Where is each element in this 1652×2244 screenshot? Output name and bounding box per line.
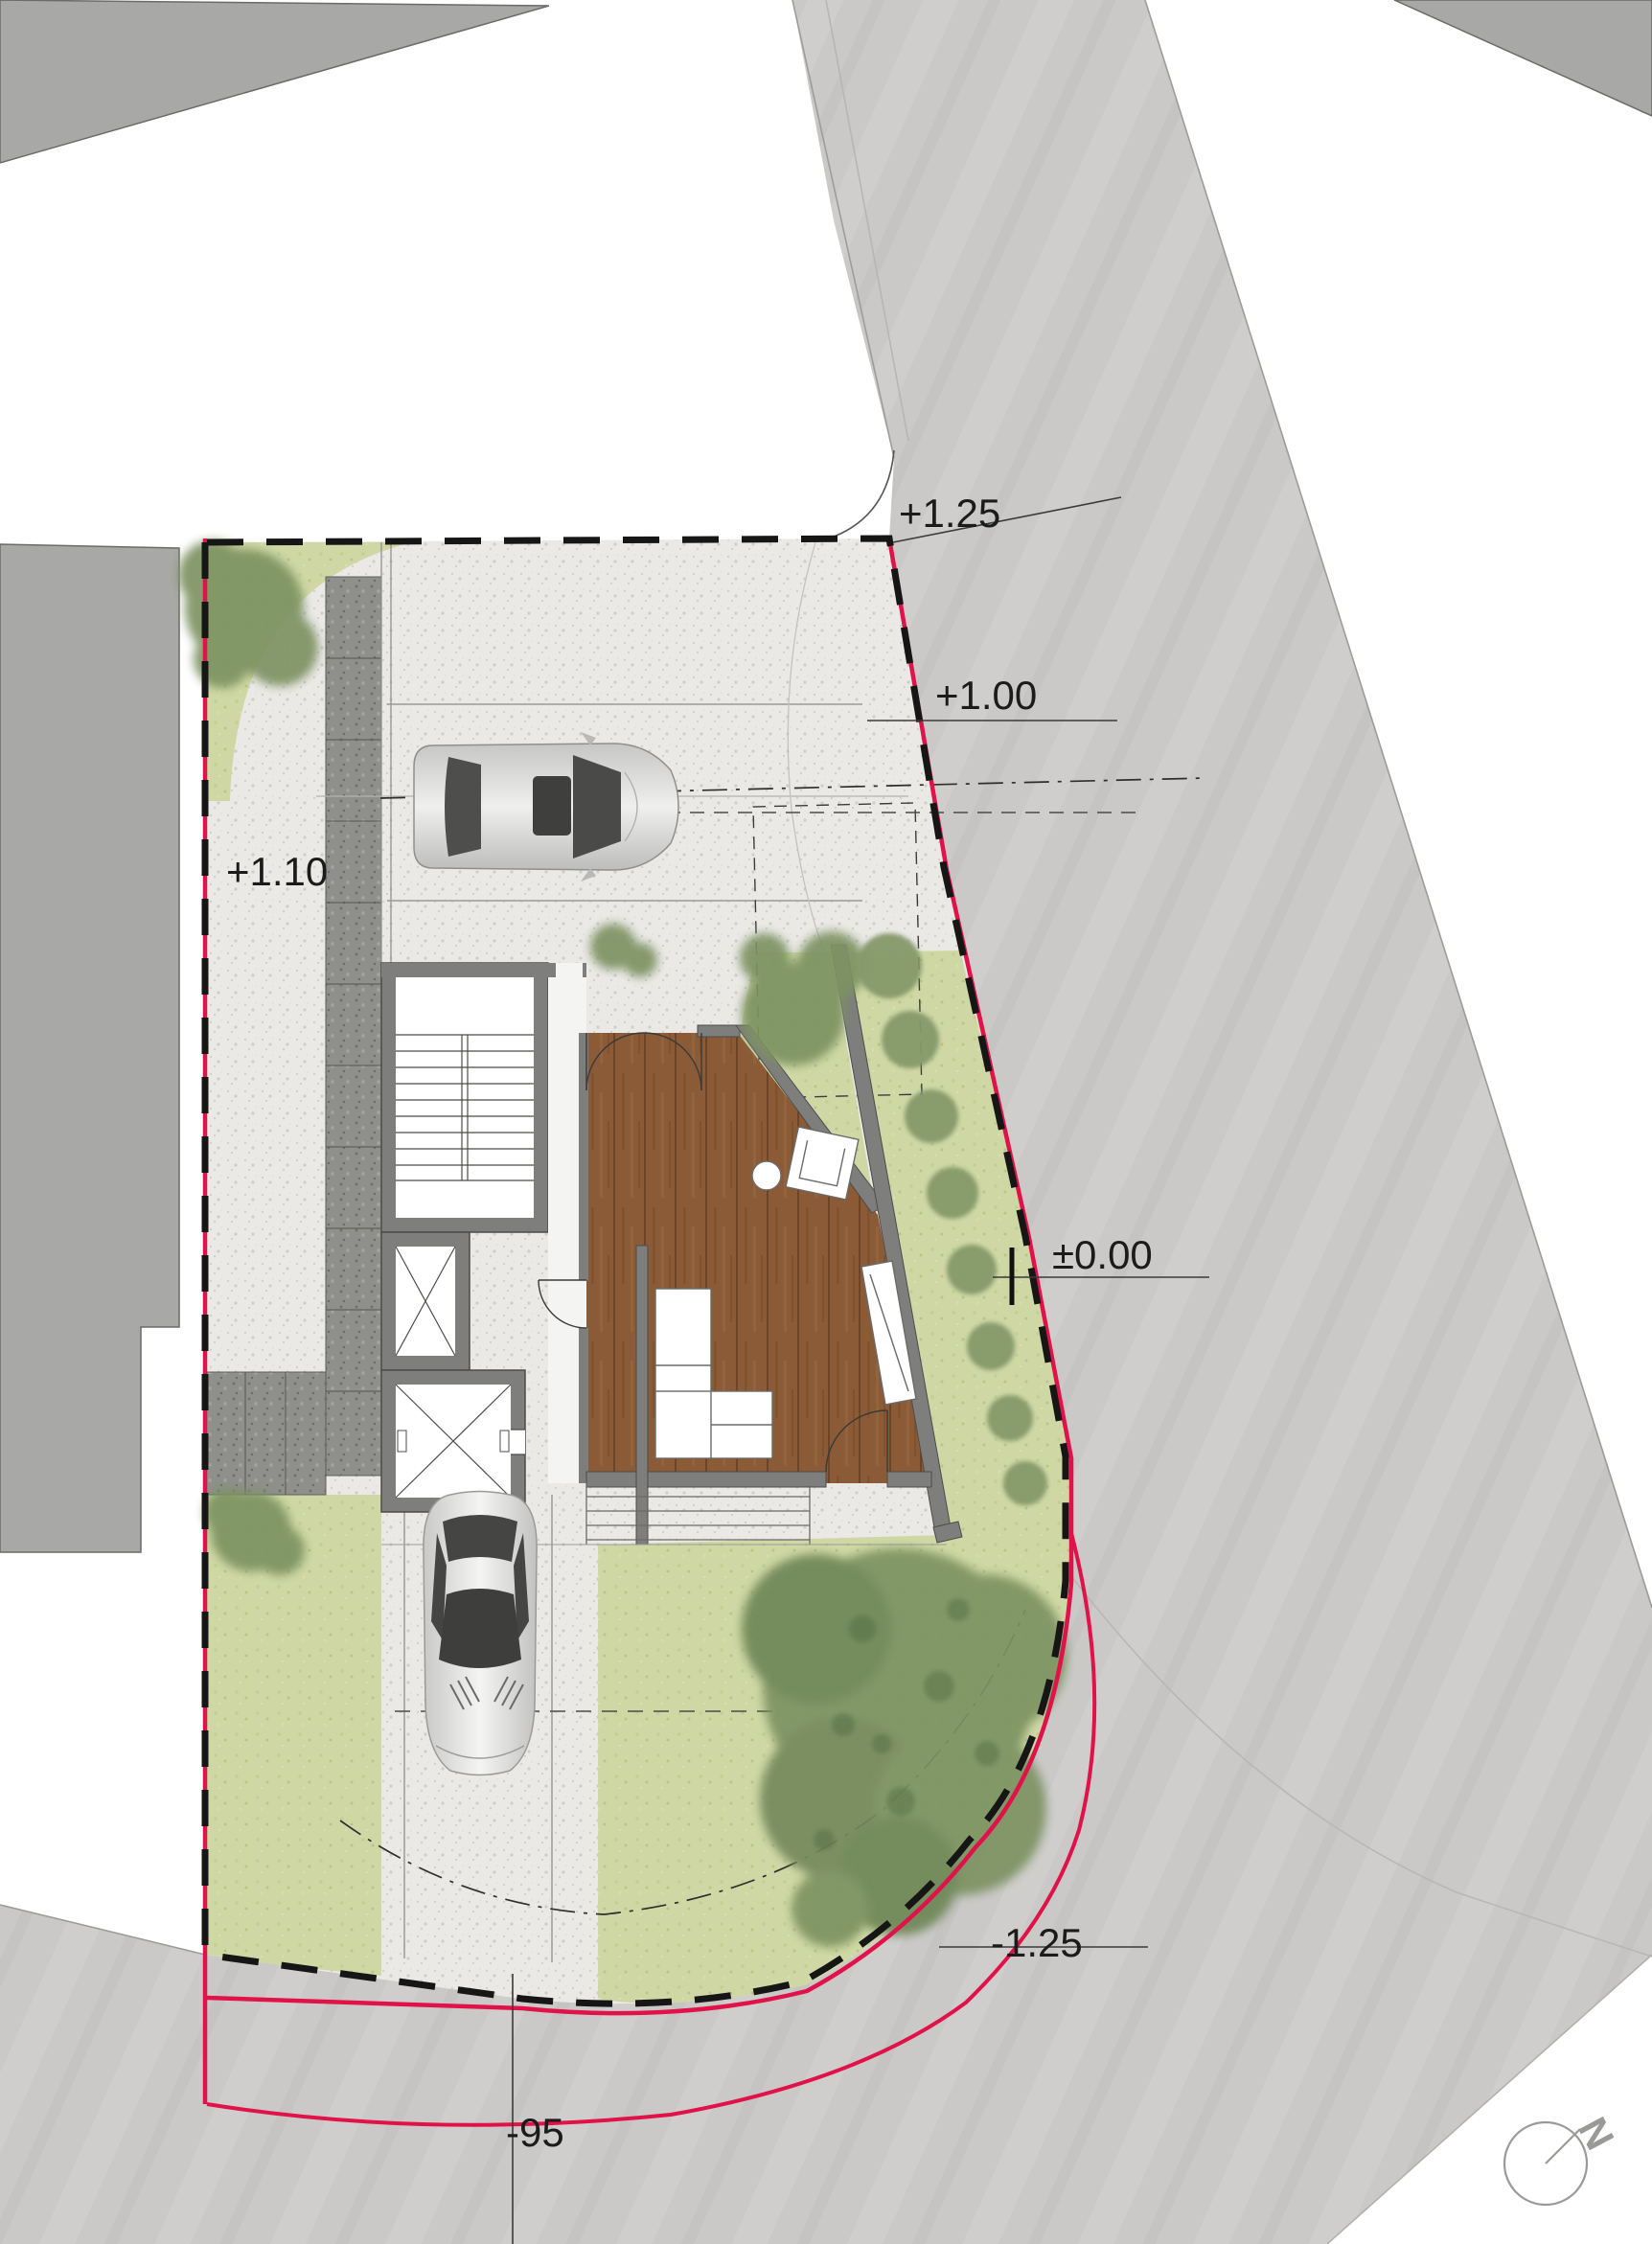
level-label-street-mid: +1.00 xyxy=(935,673,1037,718)
level-label-ground: ±0.00 xyxy=(1052,1232,1153,1277)
level-label-street-lower: -1.25 xyxy=(991,1920,1083,1965)
elevator-rail-right xyxy=(500,1431,509,1452)
car-top-parking xyxy=(414,732,678,882)
side-table xyxy=(752,1161,781,1190)
north-wall-stub xyxy=(698,1025,740,1037)
north-wall-core xyxy=(381,963,586,977)
building-west xyxy=(0,544,179,1552)
elevator-rail-left xyxy=(398,1431,406,1452)
corridor-wall-lower xyxy=(579,1328,588,1483)
elevator xyxy=(381,1370,525,1512)
level-label-walkway: +1.10 xyxy=(226,849,328,894)
elevator-door-gap xyxy=(511,1430,525,1454)
stair-well xyxy=(396,977,534,1218)
paving-strip-west xyxy=(326,577,381,1476)
car2-rear-window xyxy=(443,1515,517,1562)
vestibule-opening xyxy=(556,963,583,977)
site-plan-page: +1.25 +1.00 +1.10 ±0.00 -1.25 -95 N xyxy=(0,0,1652,2244)
armchair xyxy=(786,1127,859,1200)
armchair-body xyxy=(786,1127,859,1200)
level-walkway: +1.10 xyxy=(226,849,328,894)
car1-windshield xyxy=(573,755,621,859)
stair-core xyxy=(381,963,548,1232)
car1-sunroof xyxy=(533,776,571,836)
level-label-street-upper: +1.25 xyxy=(899,491,1000,536)
road-corner-arc xyxy=(815,450,894,542)
partition-wall xyxy=(636,1246,648,1545)
south-wall-left xyxy=(586,1472,826,1487)
car1-rear-window xyxy=(445,757,481,857)
car-bottom-drive xyxy=(424,1492,537,1775)
paving-strip-south xyxy=(205,1372,326,1495)
site-plan-drawing: +1.25 +1.00 +1.10 ±0.00 -1.25 -95 N xyxy=(0,0,1652,2244)
building-north-east xyxy=(1394,0,1652,116)
level-label-datum: -95 xyxy=(506,2110,564,2155)
building-north-west xyxy=(0,0,549,163)
car2-windshield xyxy=(439,1589,521,1668)
south-wall-right xyxy=(887,1472,931,1487)
duct-shaft xyxy=(381,1232,470,1370)
